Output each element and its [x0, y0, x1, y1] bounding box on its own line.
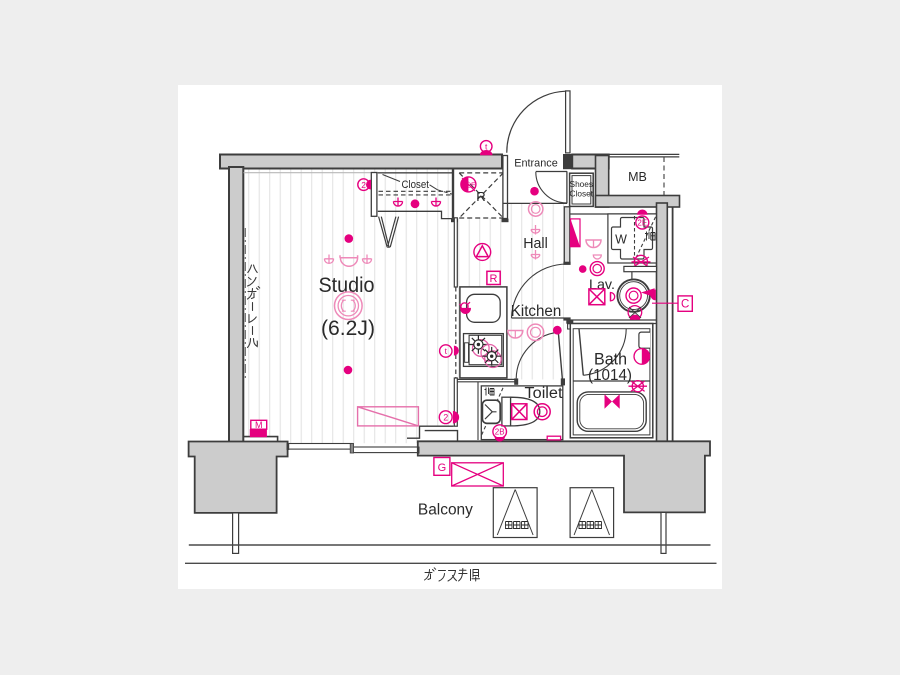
svg-text:G: G	[438, 462, 447, 474]
svg-text:(6.2J): (6.2J)	[321, 316, 375, 340]
svg-text:2E: 2E	[467, 182, 476, 189]
svg-text:W: W	[615, 233, 627, 247]
svg-text:(1014): (1014)	[588, 367, 632, 384]
svg-text:Balcony: Balcony	[418, 502, 473, 519]
svg-text:2: 2	[361, 180, 366, 190]
svg-text:Entrance: Entrance	[514, 158, 558, 170]
svg-text:Hall: Hall	[523, 236, 548, 252]
svg-text:M: M	[255, 420, 263, 430]
svg-text:C: C	[681, 299, 689, 311]
svg-text:Bath: Bath	[594, 351, 627, 369]
svg-text:Shoes: Shoes	[570, 179, 594, 189]
svg-text:2: 2	[443, 413, 448, 423]
svg-text:R: R	[476, 189, 485, 204]
svg-text:Studio: Studio	[319, 273, 375, 297]
svg-text:Kitchen: Kitchen	[511, 303, 562, 320]
svg-text:Toilet: Toilet	[525, 385, 564, 402]
svg-text:MB: MB	[628, 170, 647, 184]
svg-text:R: R	[490, 273, 498, 285]
svg-text:2E: 2E	[637, 219, 647, 228]
svg-text:Closet: Closet	[570, 189, 594, 199]
svg-text:2B: 2B	[495, 428, 505, 437]
svg-text:Closet: Closet	[401, 179, 429, 191]
